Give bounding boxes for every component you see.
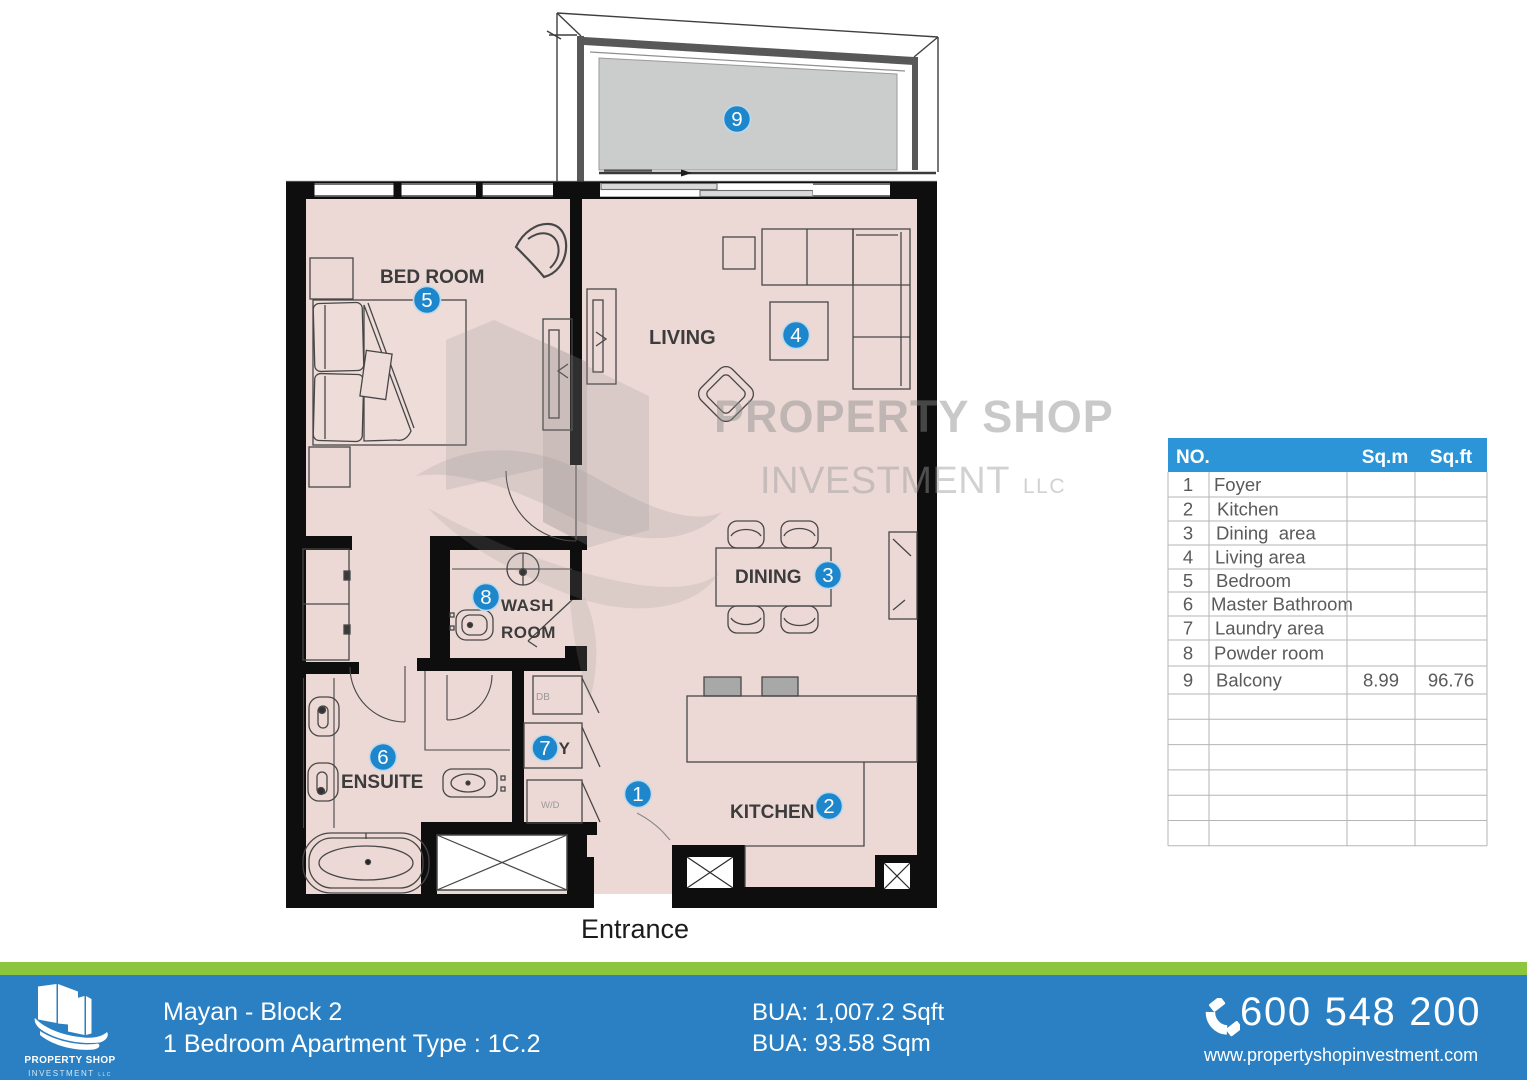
svg-text:Living area: Living area — [1215, 547, 1306, 568]
svg-text:ENSUITE: ENSUITE — [341, 772, 423, 793]
svg-text:8.99: 8.99 — [1363, 670, 1399, 691]
svg-text:PROPERTY SHOP: PROPERTY SHOP — [714, 391, 1114, 442]
svg-text:INVESTMENT: INVESTMENT — [760, 460, 1010, 502]
svg-text:NO.: NO. — [1176, 447, 1210, 468]
svg-text:2: 2 — [1183, 499, 1193, 520]
svg-text:Powder room: Powder room — [1214, 643, 1324, 664]
svg-text:2: 2 — [823, 795, 834, 818]
svg-text:1: 1 — [1183, 474, 1193, 495]
svg-text:Sq.m: Sq.m — [1362, 447, 1408, 468]
svg-text:Balcony: Balcony — [1216, 670, 1283, 691]
svg-text:9: 9 — [731, 108, 742, 131]
svg-text:6: 6 — [1183, 594, 1193, 615]
svg-text:3: 3 — [822, 564, 833, 587]
svg-text:W/D: W/D — [541, 800, 560, 811]
svg-text:5: 5 — [421, 289, 432, 312]
svg-text:Kitchen: Kitchen — [1217, 499, 1279, 520]
svg-text:Entrance: Entrance — [581, 914, 689, 944]
svg-text:Sq.ft: Sq.ft — [1430, 447, 1473, 468]
svg-text:96.76: 96.76 — [1428, 670, 1474, 691]
svg-text:Laundry area: Laundry area — [1215, 618, 1325, 639]
svg-text:LLC: LLC — [1023, 475, 1066, 498]
svg-text:ROOM: ROOM — [501, 623, 556, 642]
svg-text:Foyer: Foyer — [1214, 474, 1261, 495]
svg-text:DB: DB — [536, 692, 550, 703]
svg-text:Master Bathroom: Master Bathroom — [1211, 594, 1353, 615]
svg-text:6: 6 — [377, 746, 388, 769]
svg-text:4: 4 — [790, 324, 801, 347]
svg-text:7: 7 — [539, 737, 550, 760]
svg-text:5: 5 — [1183, 570, 1193, 591]
svg-text:1: 1 — [632, 783, 643, 806]
svg-text:BED ROOM: BED ROOM — [380, 267, 485, 288]
svg-text:WASH: WASH — [501, 596, 554, 615]
svg-text:Dining area: Dining area — [1216, 523, 1316, 544]
svg-text:7: 7 — [1183, 618, 1193, 639]
svg-text:DINING: DINING — [735, 567, 802, 588]
svg-text:4: 4 — [1183, 547, 1193, 568]
svg-text:KITCHEN: KITCHEN — [730, 802, 814, 823]
svg-text:3: 3 — [1183, 523, 1193, 544]
svg-text:Bedroom: Bedroom — [1216, 570, 1291, 591]
svg-text:8: 8 — [480, 586, 491, 609]
svg-text:LIVING: LIVING — [649, 327, 716, 349]
svg-text:8: 8 — [1183, 643, 1193, 664]
svg-text:9: 9 — [1183, 670, 1193, 691]
